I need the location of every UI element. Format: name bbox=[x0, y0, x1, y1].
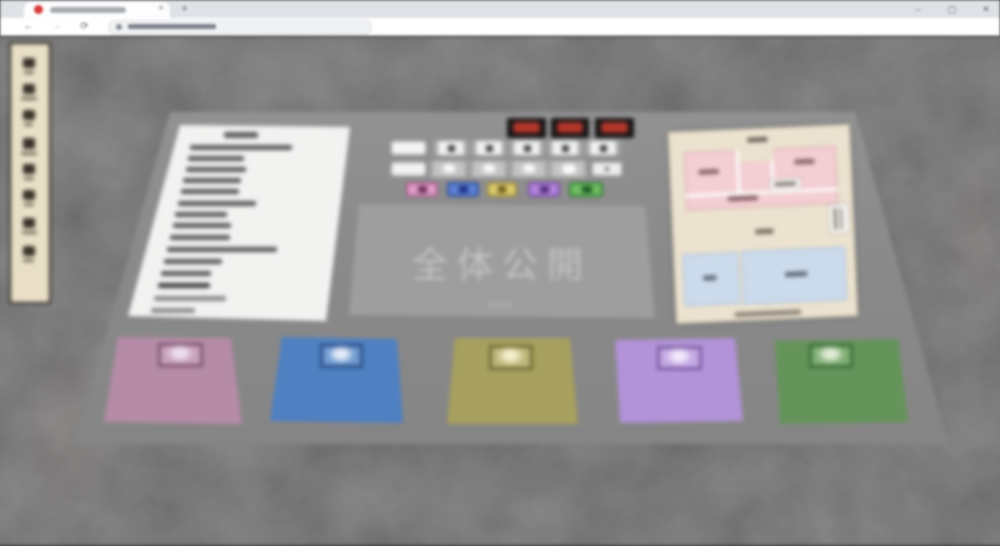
character-token-icon bbox=[816, 346, 845, 364]
counter-digits bbox=[602, 123, 627, 132]
game-objects-layer bbox=[0, 36, 1000, 546]
sidebar-tool-icon[interactable] bbox=[23, 58, 35, 68]
sidebar-tool-icon[interactable] bbox=[23, 246, 35, 256]
sidebar-tool-icon[interactable] bbox=[23, 164, 35, 174]
browser-toolbar: ← → ⟳ bbox=[0, 18, 1000, 36]
card-glyph bbox=[562, 145, 569, 152]
card-glyph bbox=[562, 164, 576, 174]
chip-glyph bbox=[418, 186, 427, 193]
browser-chrome: × + – ▢ ✕ ← → ⟳ bbox=[0, 0, 1000, 36]
window-close-icon[interactable]: ✕ bbox=[980, 3, 992, 15]
window-maximize-icon[interactable]: ▢ bbox=[946, 3, 958, 15]
character-token-icon bbox=[496, 347, 525, 366]
sidebar-tool-icon[interactable] bbox=[23, 190, 35, 200]
tab-close-icon[interactable]: × bbox=[154, 2, 168, 16]
tab-strip: × + – ▢ ✕ bbox=[0, 0, 1000, 18]
card-glyph bbox=[605, 167, 609, 171]
back-icon[interactable]: ← bbox=[22, 20, 35, 33]
chip-glyph bbox=[498, 186, 506, 193]
card-glyph bbox=[600, 145, 607, 152]
card-button[interactable] bbox=[391, 141, 426, 155]
sidebar-tool-label bbox=[24, 71, 34, 74]
url-text-bar bbox=[128, 24, 216, 29]
card-glyph bbox=[483, 164, 495, 173]
window-minimize-icon[interactable]: – bbox=[912, 3, 924, 15]
zone-mark bbox=[488, 302, 512, 307]
sidebar-tool-label bbox=[22, 231, 37, 234]
card-glyph bbox=[523, 164, 535, 173]
sidebar-tool-label bbox=[24, 123, 33, 126]
card-glyph bbox=[524, 145, 531, 152]
forward-icon[interactable]: → bbox=[50, 20, 63, 33]
sidebar-tool-icon[interactable] bbox=[23, 138, 35, 149]
chip-glyph bbox=[582, 186, 592, 193]
character-token-icon bbox=[166, 345, 194, 363]
sidebar-tool-label bbox=[23, 259, 34, 262]
counter-digits bbox=[514, 123, 539, 132]
sidebar-tool-icon[interactable] bbox=[23, 218, 35, 228]
character-token-icon bbox=[327, 346, 355, 364]
tool-sidebar[interactable] bbox=[9, 42, 51, 304]
character-token-icon bbox=[665, 348, 693, 366]
card-glyph bbox=[486, 145, 493, 152]
site-info-icon[interactable] bbox=[116, 24, 122, 30]
tabletop-scene[interactable]: 全体公開 bbox=[0, 36, 1000, 546]
tab-favicon-icon bbox=[34, 5, 43, 14]
card-glyph bbox=[443, 164, 455, 173]
card-glyph bbox=[448, 145, 455, 152]
chip-glyph bbox=[540, 186, 549, 193]
card-button[interactable] bbox=[391, 162, 426, 176]
sidebar-tool-label bbox=[21, 97, 37, 100]
chip-glyph bbox=[459, 186, 468, 193]
counter-digits bbox=[558, 123, 582, 132]
new-tab-button[interactable]: + bbox=[178, 3, 191, 16]
sidebar-tool-label bbox=[21, 152, 37, 155]
sidebar-tool-label bbox=[24, 203, 34, 206]
reload-icon[interactable]: ⟳ bbox=[78, 20, 91, 33]
sidebar-tool-label bbox=[24, 177, 34, 180]
sidebar-tool-icon[interactable] bbox=[23, 110, 35, 120]
sidebar-tool-icon[interactable] bbox=[23, 84, 35, 94]
tab-title-bar bbox=[50, 7, 126, 13]
